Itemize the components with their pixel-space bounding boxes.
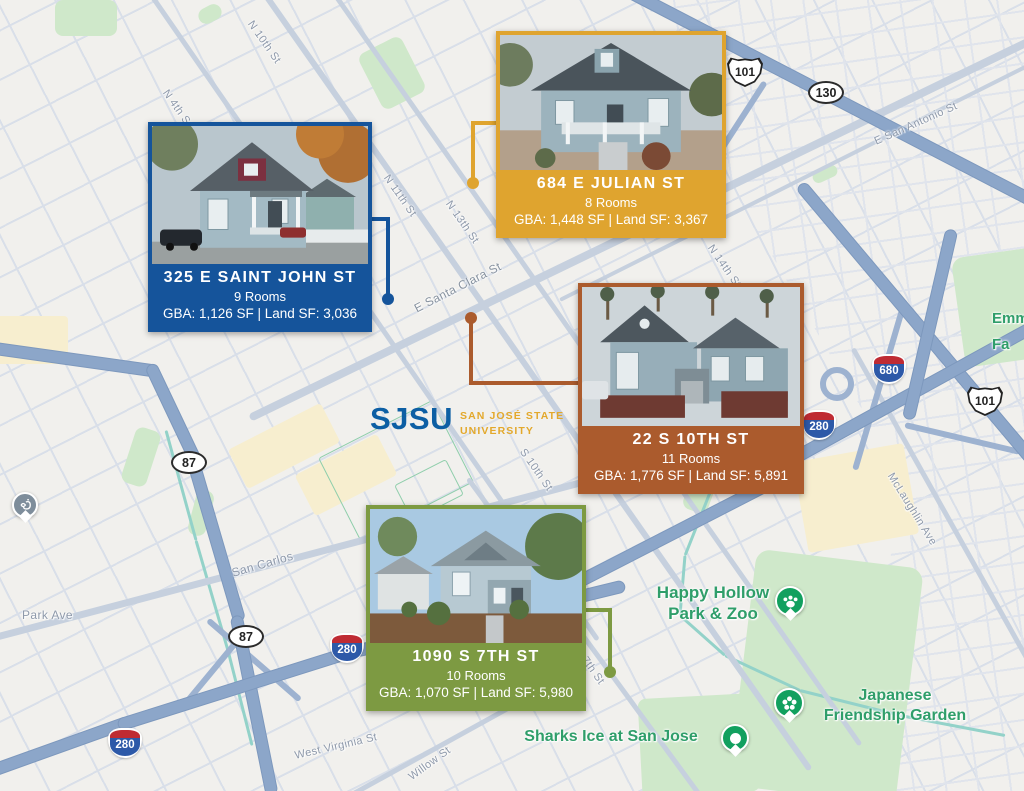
sharks-ice-pin[interactable] [721, 724, 749, 755]
property-photo [500, 35, 722, 170]
connector-line [608, 608, 612, 672]
map-marker-olive[interactable] [604, 666, 616, 678]
card-size: GBA: 1,126 SF | Land SF: 3,036 [154, 306, 366, 321]
property-card-julian[interactable]: 684 E JULIAN ST 8 Rooms GBA: 1,448 SF | … [496, 31, 726, 238]
card-info-panel: 22 S 10TH ST 11 Rooms GBA: 1,776 SF | La… [582, 426, 800, 490]
card-address: 1090 S 7TH ST [372, 648, 580, 666]
property-card-10th[interactable]: 22 S 10TH ST 11 Rooms GBA: 1,776 SF | La… [578, 283, 804, 494]
card-address: 22 S 10TH ST [584, 431, 798, 449]
map-marker-blue[interactable] [382, 293, 394, 305]
property-photo [582, 287, 800, 426]
property-card-saint-john[interactable]: 325 E SAINT JOHN ST 9 Rooms GBA: 1,126 S… [148, 122, 372, 332]
card-size: GBA: 1,776 SF | Land SF: 5,891 [584, 468, 798, 483]
card-info-panel: 1090 S 7TH ST 10 Rooms GBA: 1,070 SF | L… [370, 643, 582, 707]
connector-line [469, 381, 581, 385]
property-card-7th[interactable]: 1090 S 7TH ST 10 Rooms GBA: 1,070 SF | L… [366, 505, 586, 711]
card-rooms: 11 Rooms [584, 451, 798, 466]
connector-line [469, 322, 473, 385]
card-rooms: 8 Rooms [502, 195, 720, 210]
card-address: 325 E SAINT JOHN ST [154, 269, 366, 287]
interstate-shield: 280 [802, 410, 836, 440]
card-address: 684 E JULIAN ST [502, 175, 720, 193]
connector-line [386, 217, 390, 297]
connector-line [472, 121, 499, 125]
map-stage[interactable]: N 10th StN 4th StN 11th StN 13th StN 14t… [0, 0, 1024, 791]
connector-line [471, 121, 475, 183]
temple-pin[interactable] [12, 492, 38, 521]
card-info-panel: 684 E JULIAN ST 8 Rooms GBA: 1,448 SF | … [500, 170, 722, 234]
map-marker-gold[interactable] [467, 177, 479, 189]
interstate-shield: 280 [330, 633, 364, 663]
zoo-pin[interactable] [775, 586, 805, 619]
interstate-shield: 680 [872, 354, 906, 384]
interstate-shield: 280 [108, 728, 142, 758]
card-info-panel: 325 E SAINT JOHN ST 9 Rooms GBA: 1,126 S… [152, 264, 368, 328]
garden-pin[interactable] [774, 688, 804, 721]
card-rooms: 10 Rooms [372, 668, 580, 683]
card-size: GBA: 1,070 SF | Land SF: 5,980 [372, 685, 580, 700]
map-marker-sienna[interactable] [465, 312, 477, 324]
property-photo [370, 509, 582, 643]
card-rooms: 9 Rooms [154, 289, 366, 304]
property-photo [152, 126, 368, 264]
card-size: GBA: 1,448 SF | Land SF: 3,367 [502, 212, 720, 227]
